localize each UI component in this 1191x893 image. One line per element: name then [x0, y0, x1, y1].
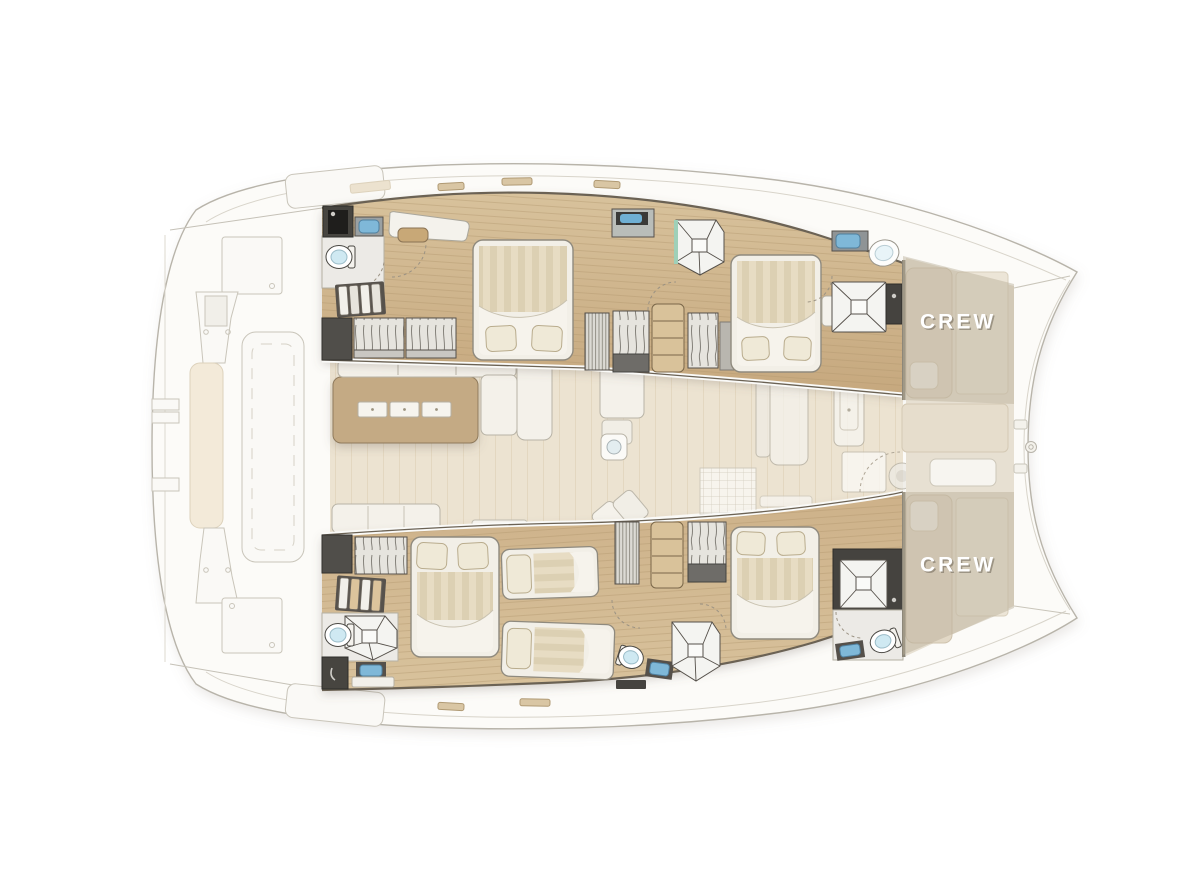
toilet-icon [325, 624, 354, 647]
deck-hatch-glass [607, 440, 621, 454]
port-wardrobes [322, 318, 456, 360]
wardrobe-drawer [613, 354, 649, 372]
transom-step [152, 412, 179, 423]
sink-icon [359, 220, 379, 233]
tambour-cabinet [615, 522, 639, 584]
dark-panel [886, 284, 902, 324]
pillow [485, 325, 516, 352]
starboard-single-bed-lower [501, 621, 615, 680]
starboard-forward-head [322, 613, 398, 689]
shelf-icon [651, 522, 683, 588]
pillow [531, 325, 562, 352]
deck-panel-bottom [222, 598, 282, 653]
dark-cabinet [322, 535, 352, 573]
shower-drain [688, 644, 703, 657]
crew-label-port: CREW [920, 311, 996, 334]
pillow [506, 628, 531, 669]
chaise-lounge [517, 361, 552, 440]
yacht-floorplan-canvas: CREW CREW CREW CREW [0, 0, 1191, 893]
windlass-icon [1026, 442, 1037, 453]
sunpad [190, 363, 223, 528]
wardrobe-drawer [406, 350, 456, 358]
bow-section: CREW CREW CREW CREW [902, 256, 1027, 656]
shower-drain [851, 300, 867, 314]
dark-cabinet [322, 318, 352, 360]
fwd-sofa-back [756, 381, 770, 457]
pillow [741, 336, 769, 360]
bow-cleat [1014, 420, 1027, 429]
shower-drain [692, 239, 707, 252]
fwd-sofa-seat [770, 377, 808, 465]
port-forward-bed [473, 240, 573, 360]
mattress [417, 572, 493, 620]
counter [352, 677, 394, 687]
dark-locker [322, 657, 348, 689]
port-aft-bed [731, 255, 835, 372]
vanity-stool [398, 228, 428, 242]
starboard-companionway-stairs [335, 575, 386, 613]
port-forward-head [322, 206, 384, 288]
locker-knob [331, 212, 335, 216]
wardrobe-icon [355, 537, 407, 574]
pillow [416, 542, 447, 570]
starboard-forward-bed [411, 537, 499, 657]
mattress [737, 261, 815, 323]
starboard-wardrobes [322, 535, 407, 574]
floorplan-svg: CREW CREW CREW CREW [0, 0, 1191, 893]
mattress [533, 552, 574, 593]
starboard-aft-head [833, 549, 903, 661]
sink-icon [649, 662, 669, 677]
crew-cabin-port: CREW CREW [903, 256, 1014, 404]
pillow [506, 555, 531, 594]
console-grid [205, 296, 227, 326]
port-mid-lockers [585, 304, 738, 372]
starboard-aft-bed [731, 527, 819, 639]
shower-drain [856, 577, 871, 590]
shower-drain [362, 630, 377, 643]
grid-mat [700, 468, 756, 514]
pillow [457, 542, 488, 570]
bow-pillow [930, 459, 996, 486]
wardrobe-drawer [688, 564, 726, 582]
starboard-mid-lockers [615, 522, 726, 588]
mattress [533, 627, 585, 673]
toilet-icon [326, 246, 355, 269]
mattress [737, 558, 813, 600]
bow-cleat [1014, 464, 1027, 473]
bow-mattress [902, 404, 1008, 452]
pillow [783, 336, 811, 360]
starboard-single-bed-upper [501, 546, 599, 599]
tambour-cabinet [585, 313, 609, 370]
deck-panel-top [222, 237, 282, 294]
sink-icon [839, 644, 860, 658]
wardrobe-drawer [354, 350, 404, 358]
lounge-bed [242, 332, 304, 562]
sink-icon [836, 234, 860, 248]
vent-strip [616, 680, 646, 689]
mattress [479, 246, 567, 312]
wardrobe-icon [688, 313, 718, 368]
pillow [776, 531, 805, 555]
sink-icon [360, 665, 382, 676]
transom-step [152, 478, 179, 491]
crew-label-starboard: CREW [920, 554, 996, 577]
pillow [736, 531, 765, 555]
port-companionway-stairs [335, 281, 386, 317]
shower-glass [674, 220, 678, 264]
transom-step [152, 399, 179, 410]
sink-icon [620, 214, 642, 223]
cockpit-door-cabinet [842, 452, 886, 492]
